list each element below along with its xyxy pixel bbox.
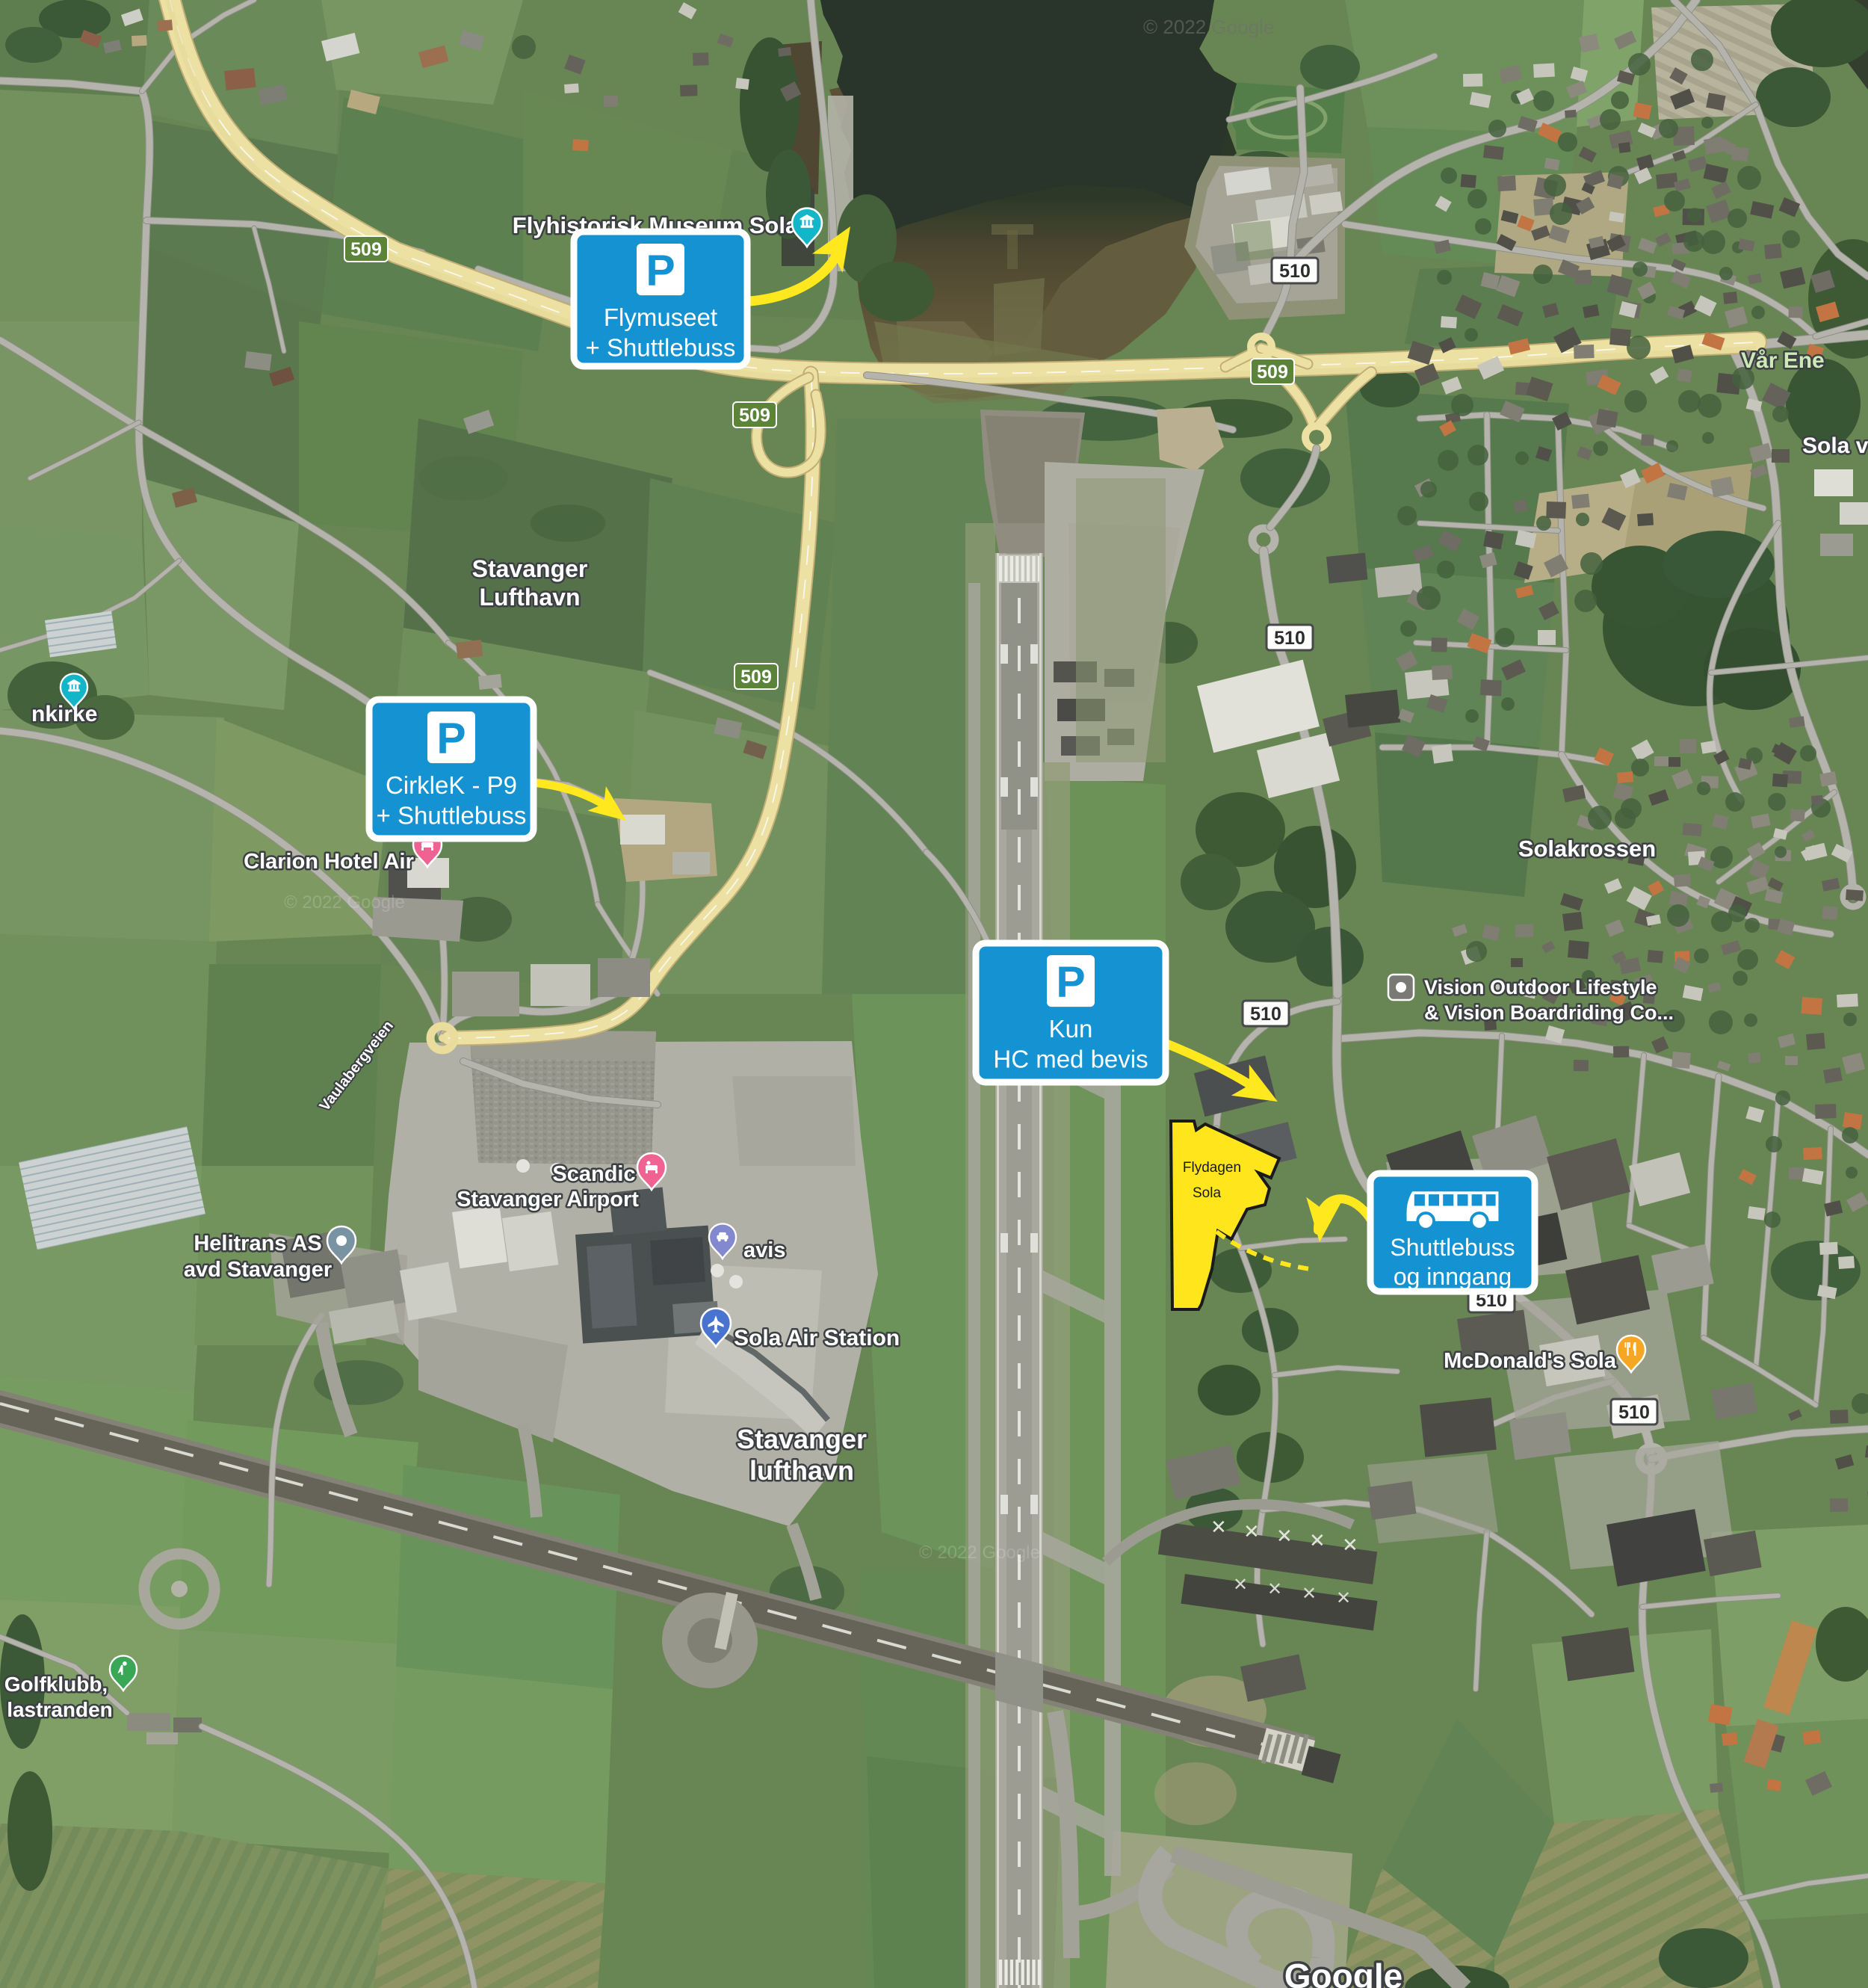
svg-text:509: 509: [740, 667, 772, 688]
svg-text:Vision Outdoor Lifestyle: Vision Outdoor Lifestyle: [1424, 976, 1657, 998]
svg-text:Clarion Hotel Air: Clarion Hotel Air: [244, 850, 414, 874]
svg-text:Flydagen: Flydagen: [1183, 1160, 1241, 1176]
svg-text:CirkleK - P9: CirkleK - P9: [386, 771, 517, 799]
svg-text:Vår Ene: Vår Ene: [1741, 348, 1825, 373]
svg-text:nkirke: nkirke: [31, 702, 97, 726]
svg-text:Stavanger: Stavanger: [737, 1424, 867, 1454]
svg-text:+ Shuttlebuss: + Shuttlebuss: [377, 801, 527, 829]
svg-text:Flymuseet: Flymuseet: [604, 303, 717, 331]
svg-text:lastranden: lastranden: [7, 1698, 113, 1721]
svg-text:Lufthavn: Lufthavn: [479, 584, 580, 611]
svg-text:Stavanger: Stavanger: [472, 555, 588, 582]
svg-text:509: 509: [350, 239, 382, 260]
svg-text:510: 510: [1274, 628, 1305, 649]
svg-text:Google: Google: [1284, 1957, 1402, 1988]
svg-text:Sola: Sola: [1193, 1185, 1221, 1201]
svg-text:lufthavn: lufthavn: [749, 1455, 854, 1486]
svg-text:Stavanger Airport: Stavanger Airport: [457, 1188, 639, 1211]
svg-text:+ Shuttlebuss: + Shuttlebuss: [586, 333, 736, 361]
svg-text:og inngang: og inngang: [1394, 1263, 1512, 1290]
svg-text:Golfklubb,: Golfklubb,: [4, 1673, 108, 1696]
svg-text:509: 509: [1257, 362, 1288, 383]
svg-text:510: 510: [1250, 1004, 1281, 1025]
svg-text:509: 509: [739, 405, 770, 426]
svg-text:Kun: Kun: [1049, 1015, 1093, 1043]
svg-text:& Vision Boardriding Co...: & Vision Boardriding Co...: [1424, 1001, 1674, 1024]
svg-text:P: P: [1056, 958, 1085, 1007]
svg-text:Scandic: Scandic: [552, 1162, 635, 1186]
svg-text:HC med bevis: HC med bevis: [993, 1045, 1148, 1072]
svg-text:Helitrans AS: Helitrans AS: [194, 1232, 321, 1256]
svg-text:avis: avis: [743, 1238, 785, 1262]
svg-text:510: 510: [1279, 261, 1311, 282]
svg-text:Solakrossen: Solakrossen: [1518, 836, 1656, 862]
svg-text:P: P: [646, 247, 675, 295]
svg-text:510: 510: [1618, 1402, 1650, 1423]
svg-text:Sola vid: Sola vid: [1802, 433, 1868, 458]
svg-text:avd Stavanger: avd Stavanger: [184, 1258, 332, 1282]
svg-text:P: P: [436, 714, 466, 763]
svg-text:Shuttlebuss: Shuttlebuss: [1390, 1234, 1515, 1261]
svg-text:Sola Air Station: Sola Air Station: [734, 1326, 900, 1350]
svg-text:McDonald's Sola: McDonald's Sola: [1444, 1349, 1617, 1373]
